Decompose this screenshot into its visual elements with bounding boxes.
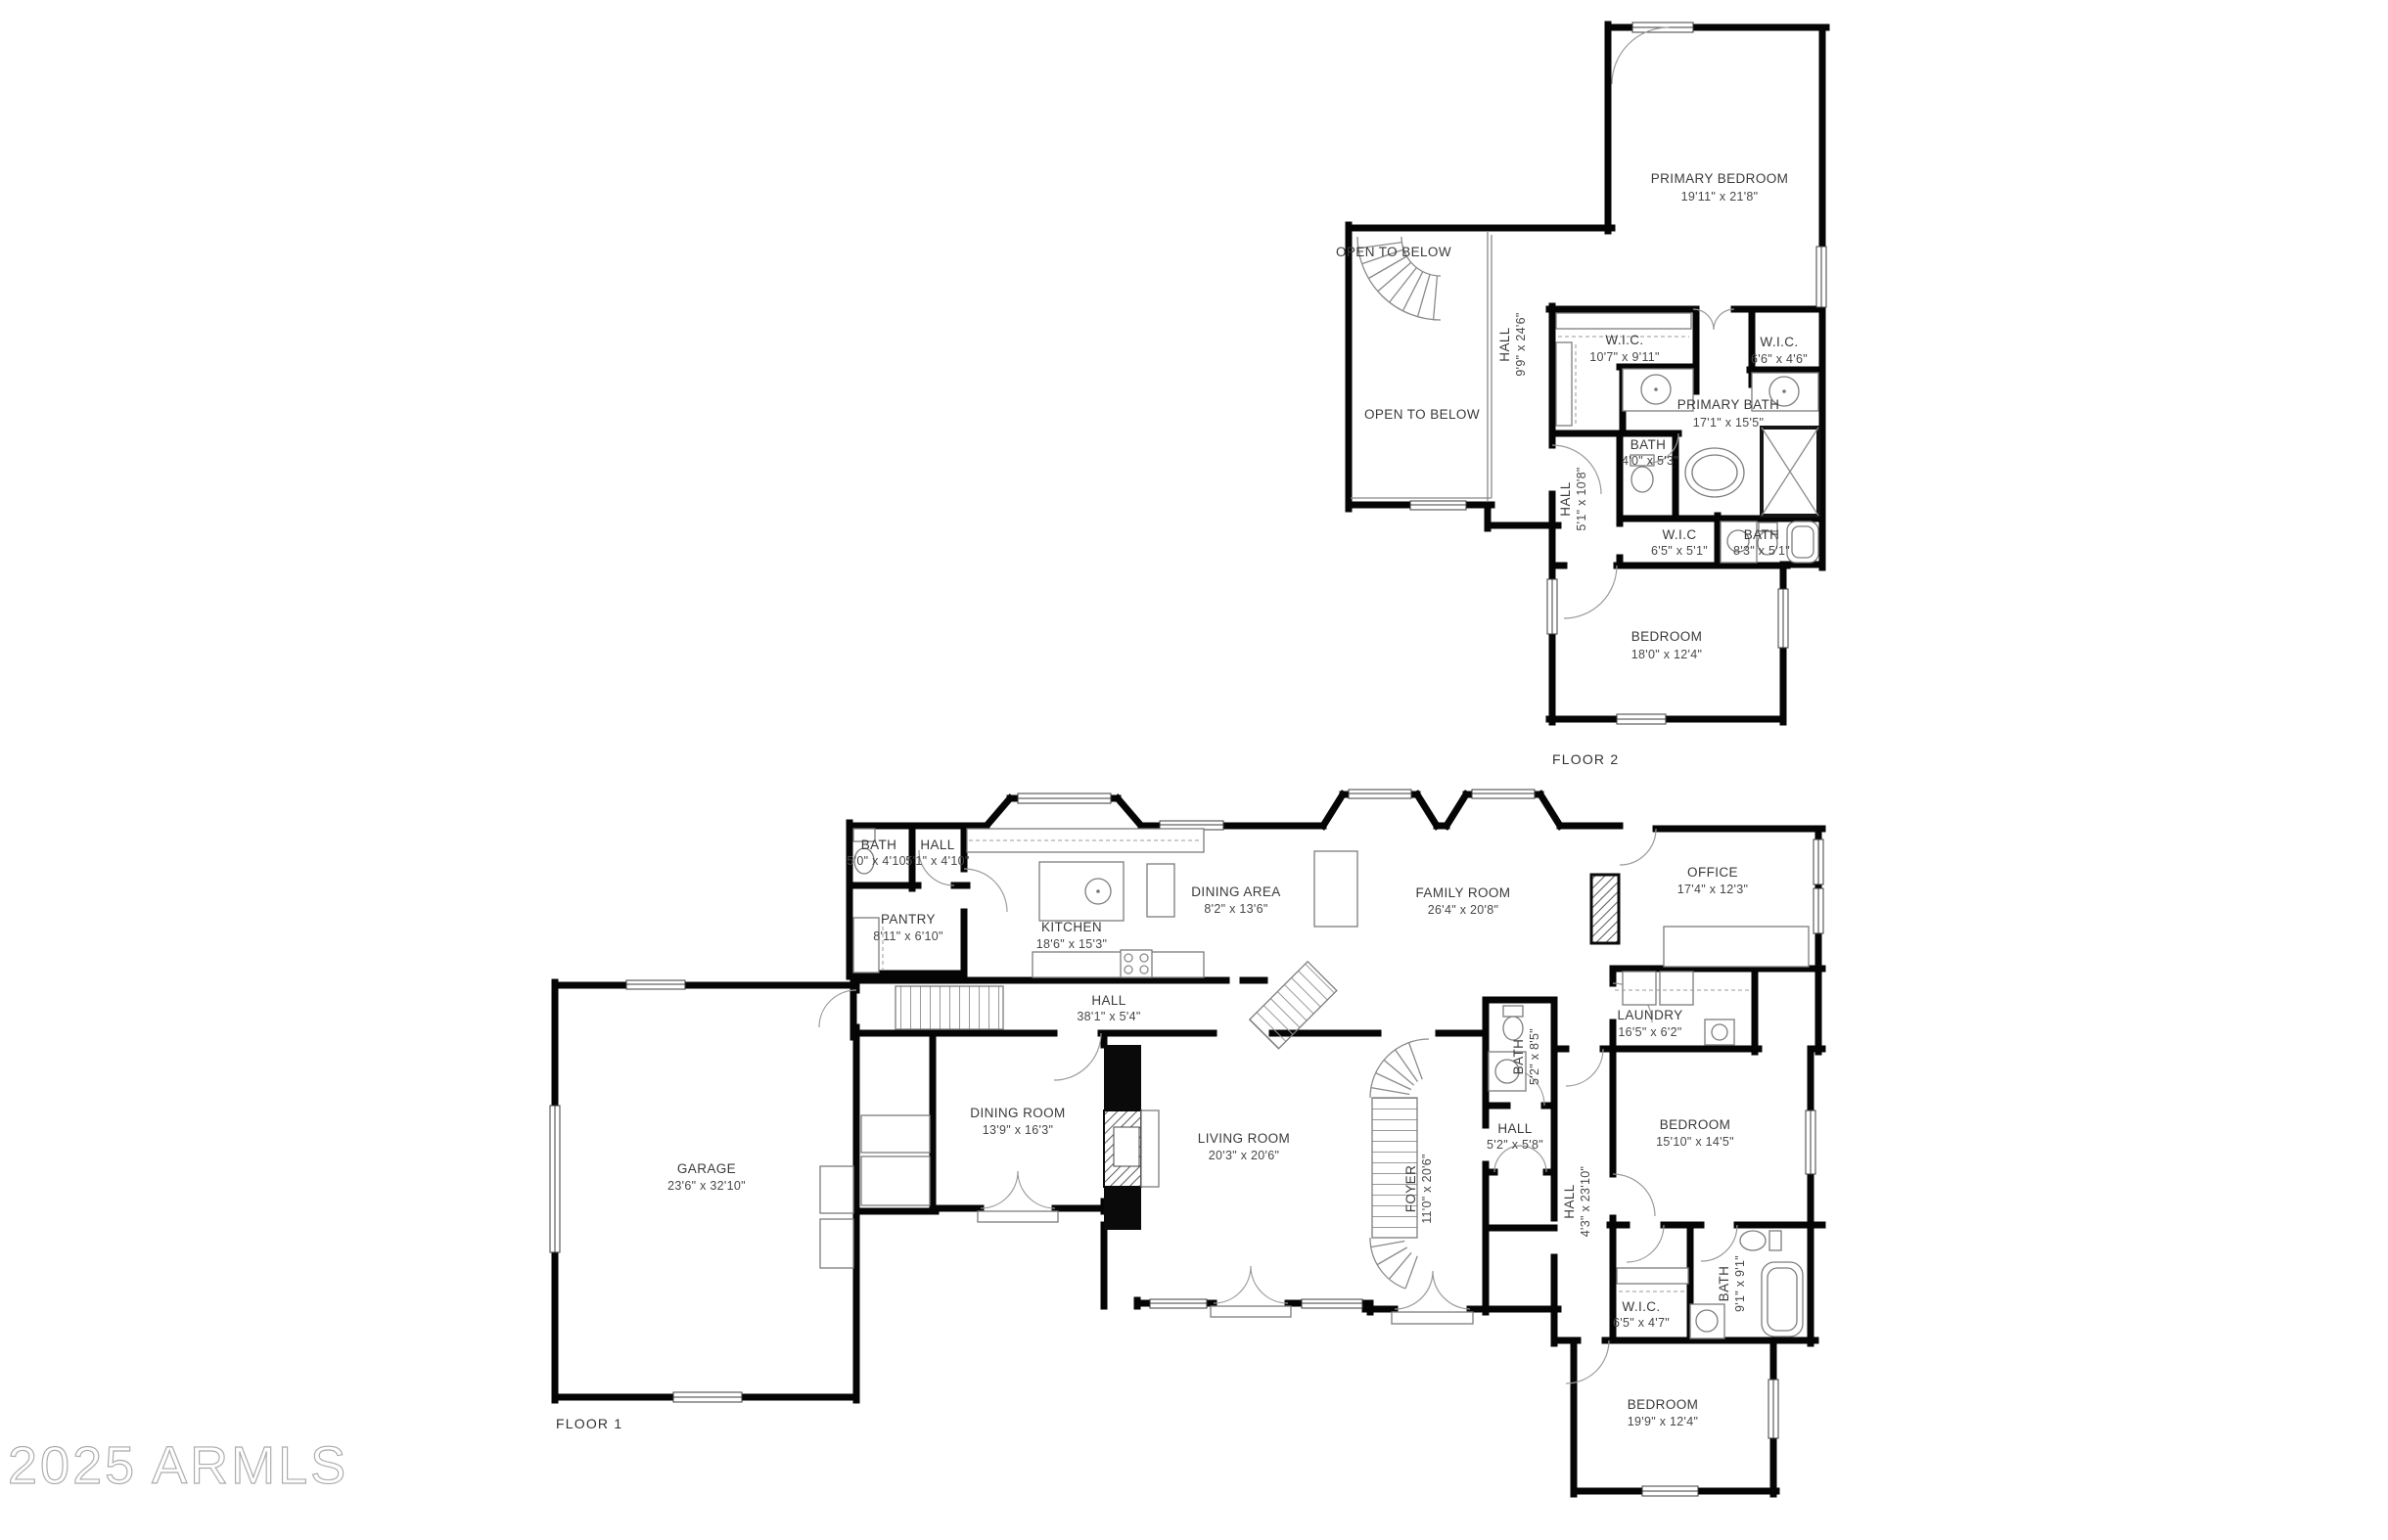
room-garage: GARAGE 23'6" x 32'10" xyxy=(667,1161,746,1193)
room-dims: 38'1" x 5'4" xyxy=(1077,1010,1140,1023)
room-dims: 15'10" x 14'5" xyxy=(1656,1135,1734,1149)
room-dims: 17'1" x 15'5" xyxy=(1693,416,1764,430)
room-name: W.I.C. xyxy=(1760,335,1798,349)
room-name: OPEN TO BELOW xyxy=(1336,245,1451,259)
room-dims: 19'9" x 12'4" xyxy=(1628,1415,1698,1428)
room-name: LIVING ROOM xyxy=(1198,1131,1290,1146)
room-open-to-below-lower: OPEN TO BELOW xyxy=(1364,407,1480,422)
room-bedroom-f2: BEDROOM 18'0" x 12'4" xyxy=(1631,629,1703,661)
room-wic-primary-1: W.I.C. 10'7" x 9'11" xyxy=(1589,333,1660,364)
room-dims: 19'11" x 21'8" xyxy=(1681,190,1759,204)
room-name: W.I.C. xyxy=(1622,1299,1660,1314)
room-dims: 8'11" x 6'10" xyxy=(873,929,943,943)
room-dims: 6'6" x 4'6" xyxy=(1751,352,1808,366)
floor1-walls xyxy=(555,794,1822,1494)
room-primary-bath: PRIMARY BATH 17'1" x 15'5" xyxy=(1677,397,1780,430)
room-name: BATH xyxy=(1630,437,1667,452)
floor1-fixtures xyxy=(820,829,1809,1338)
room-hall-38: HALL 38'1" x 5'4" xyxy=(1077,993,1140,1023)
room-dining-room: DINING ROOM 13'9" x 16'3" xyxy=(970,1106,1065,1137)
room-name: BATH xyxy=(1511,1039,1526,1075)
room-pantry: PANTRY 8'11" x 6'10" xyxy=(873,912,943,943)
room-wic-f1: W.I.C. 6'5" x 4'7" xyxy=(1613,1299,1670,1330)
room-primary-bedroom: PRIMARY BEDROOM 19'11" x 21'8" xyxy=(1651,171,1789,204)
room-dims: 4'3" x 23'10" xyxy=(1579,1166,1592,1237)
room-name: PRIMARY BEDROOM xyxy=(1651,171,1789,186)
room-dining-area: DINING AREA 8'2" x 13'6" xyxy=(1191,884,1280,916)
room-dims: 16'5" x 6'2" xyxy=(1618,1025,1681,1039)
watermark-text: 2025 ARMLS xyxy=(8,1436,348,1495)
room-wic3-f2: W.I.C 6'5" x 5'1" xyxy=(1651,527,1708,558)
room-dims: 5'0" x 4'10" xyxy=(847,854,910,868)
room-dims: 26'4" x 20'8" xyxy=(1428,903,1498,917)
room-office: OFFICE 17'4" x 12'3" xyxy=(1677,865,1748,896)
floor1-label: FLOOR 1 xyxy=(556,1416,622,1431)
room-dims: 5'1" x 4'10" xyxy=(905,854,969,868)
room-name: GARAGE xyxy=(677,1161,736,1176)
room-hall-strip: HALL 4'3" x 23'10" xyxy=(1562,1166,1592,1237)
fireplace-family-room xyxy=(1591,875,1619,943)
room-name: FAMILY ROOM xyxy=(1416,885,1511,900)
room-name: LAUNDRY xyxy=(1617,1008,1682,1022)
room-name: W.I.C. xyxy=(1605,333,1643,347)
room-dims: 9'9" x 24'6" xyxy=(1514,312,1528,376)
room-name: HALL xyxy=(1562,1184,1577,1218)
room-dims: 5'2" x 5'8" xyxy=(1487,1138,1543,1152)
staircase-hall xyxy=(895,986,1003,1029)
room-name: BATH xyxy=(861,838,897,852)
room-kitchen: KITCHEN 18'6" x 15'3" xyxy=(1036,920,1107,951)
room-dims: 9'1" x 9'1" xyxy=(1733,1255,1747,1312)
room-name: BEDROOM xyxy=(1631,629,1703,644)
room-wic-primary-2: W.I.C. 6'6" x 4'6" xyxy=(1751,335,1808,366)
room-name: HALL xyxy=(920,838,954,852)
room-dims: 8'3" x 5'1" xyxy=(1733,544,1790,558)
room-name: FOYER xyxy=(1403,1165,1418,1213)
floor-plan-page: PRIMARY BEDROOM 19'11" x 21'8" OPEN TO B… xyxy=(0,0,2388,1540)
room-name: OPEN TO BELOW xyxy=(1364,407,1480,422)
room-name: DINING AREA xyxy=(1191,884,1280,899)
room-dims: 17'4" x 12'3" xyxy=(1677,883,1748,896)
floor2-label: FLOOR 2 xyxy=(1552,751,1619,767)
room-dims: 18'6" x 15'3" xyxy=(1036,937,1107,951)
room-bedroom-15: BEDROOM 15'10" x 14'5" xyxy=(1656,1117,1734,1149)
floor-plan-drawing: PRIMARY BEDROOM 19'11" x 21'8" OPEN TO B… xyxy=(0,0,2388,1540)
room-dims: 13'9" x 16'3" xyxy=(983,1123,1053,1137)
room-living-room: LIVING ROOM 20'3" x 20'6" xyxy=(1198,1131,1290,1162)
room-dims: 5'1" x 10'8" xyxy=(1575,467,1588,530)
room-bath-small-f2: BATH 4'0" x 5'3" xyxy=(1622,437,1678,468)
room-dims: 8'2" x 13'6" xyxy=(1204,902,1267,916)
room-dims: 11'0" x 20'6" xyxy=(1420,1154,1434,1224)
room-family-room: FAMILY ROOM 26'4" x 20'8" xyxy=(1416,885,1511,917)
room-dims: 18'0" x 12'4" xyxy=(1631,648,1702,661)
room-name: OFFICE xyxy=(1687,865,1738,880)
room-dims: 23'6" x 32'10" xyxy=(667,1179,746,1193)
room-hall2-f2: HALL 5'1" x 10'8" xyxy=(1558,467,1588,530)
room-open-to-below-upper: OPEN TO BELOW xyxy=(1336,245,1451,259)
room-dims: 20'3" x 20'6" xyxy=(1209,1149,1279,1162)
floor2-plan: PRIMARY BEDROOM 19'11" x 21'8" OPEN TO B… xyxy=(1336,23,1826,767)
room-name: PANTRY xyxy=(881,912,936,927)
room-bedroom-19: BEDROOM 19'9" x 12'4" xyxy=(1628,1397,1699,1428)
room-bath-91: BATH 9'1" x 9'1" xyxy=(1717,1255,1747,1312)
room-name: DINING ROOM xyxy=(970,1106,1065,1120)
room-dims: 6'5" x 5'1" xyxy=(1651,544,1708,558)
room-name: HALL xyxy=(1497,327,1512,361)
room-name: W.I.C xyxy=(1663,527,1697,542)
room-name: HALL xyxy=(1558,481,1573,516)
room-name: HALL xyxy=(1091,993,1125,1008)
floor1-windows xyxy=(550,790,1823,1496)
room-hall-small: HALL 5'2" x 5'8" xyxy=(1487,1121,1543,1152)
room-name: HALL xyxy=(1497,1121,1532,1136)
room-name: BATH xyxy=(1744,527,1780,542)
room-name: PRIMARY BATH xyxy=(1677,397,1780,412)
room-dims: 4'0" x 5'3" xyxy=(1622,454,1678,468)
room-laundry: LAUNDRY 16'5" x 6'2" xyxy=(1617,1008,1682,1039)
room-dims: 5'2" x 8'5" xyxy=(1528,1028,1541,1085)
room-name: BATH xyxy=(1717,1266,1731,1302)
room-dims: 6'5" x 4'7" xyxy=(1613,1316,1670,1330)
fireplace-dining-living xyxy=(1104,1045,1159,1230)
room-hall-f2: HALL 9'9" x 24'6" xyxy=(1497,312,1528,376)
room-name: BEDROOM xyxy=(1660,1117,1731,1132)
floor1-plan: BATH 5'0" x 4'10" HALL 5'1" x 4'10" PANT… xyxy=(550,790,1823,1496)
room-name: KITCHEN xyxy=(1041,920,1102,934)
room-dims: 10'7" x 9'11" xyxy=(1589,350,1660,364)
room-name: BEDROOM xyxy=(1628,1397,1699,1412)
